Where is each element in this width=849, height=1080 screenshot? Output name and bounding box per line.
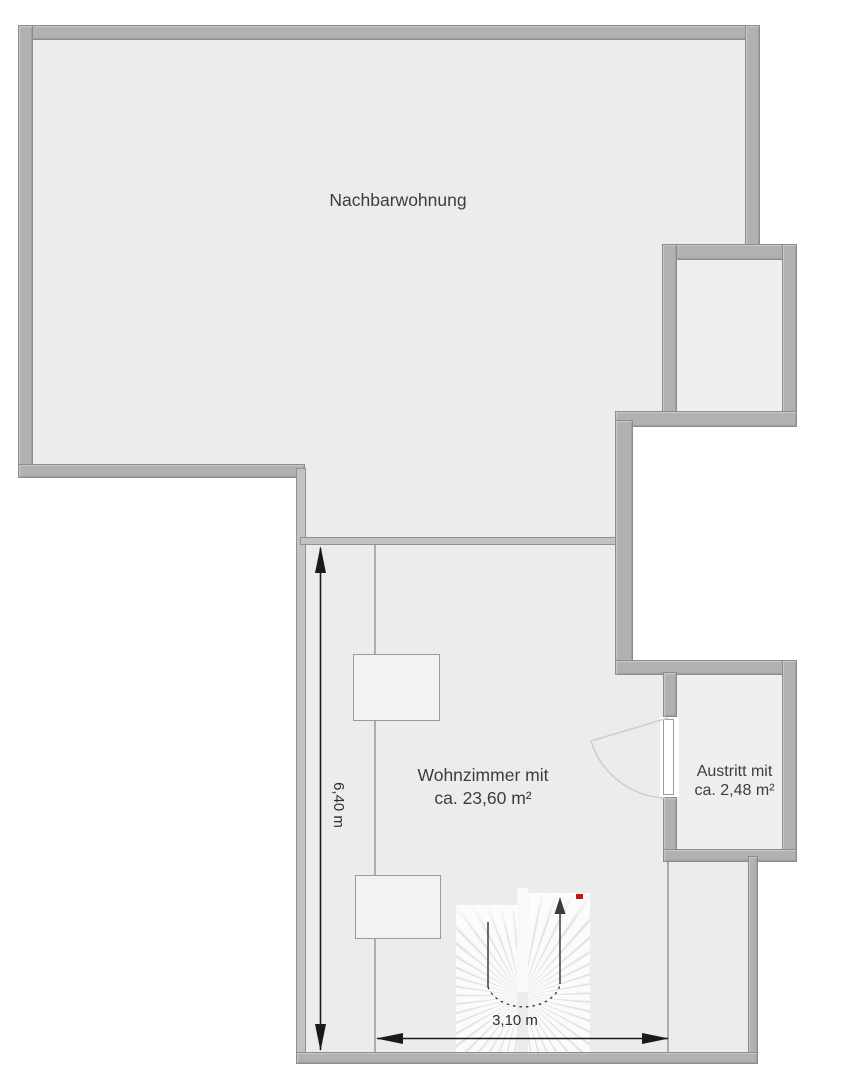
room-label-nachbarwohnung-text: Nachbarwohnung (329, 190, 466, 210)
floor-nachbarwohnung-lower-b (296, 478, 618, 545)
floor-nachbarwohnung-mid (33, 260, 662, 420)
interior-line-left (374, 545, 376, 1052)
wall-storeroom-top (662, 244, 797, 260)
wall-storeroom-bottom (615, 411, 797, 427)
floor-nachbarwohnung-upper (33, 40, 745, 260)
wall-nachbar-bottom-left (18, 464, 305, 478)
room-label-wohnzimmer-line1: Wohnzimmer mit (383, 764, 583, 787)
floor-wohnzimmer-right-lower (665, 862, 750, 1055)
floor-plan: Nachbarwohnung Wohnzimmer mit ca. 23,60 … (0, 0, 849, 1080)
interior-line-right (667, 862, 669, 1052)
stair-flight-left (456, 905, 517, 1052)
wall-divider (300, 537, 625, 545)
room-label-austritt-line1: Austritt mit (677, 762, 792, 781)
dim-label-vertical: 6,40 m (330, 764, 346, 846)
floor-storeroom (677, 260, 782, 412)
room-label-wohnzimmer-line2: ca. 23,60 m² (383, 787, 583, 810)
wall-nachbar-right-upper (745, 25, 760, 258)
wall-storeroom-right (782, 244, 797, 424)
wall-left (18, 25, 33, 478)
wall-storeroom-left (662, 244, 677, 424)
dim-label-vertical-text: 6,40 m (330, 782, 347, 828)
wall-top (18, 25, 760, 40)
wall-west-thin (296, 468, 306, 1054)
room-label-wohnzimmer: Wohnzimmer mit ca. 23,60 m² (383, 764, 583, 810)
wall-austritt-right (782, 660, 797, 862)
wall-austritt-left-lower (663, 797, 677, 854)
wall-mid-right-drop (615, 420, 633, 672)
wall-austritt-left-upper (663, 672, 677, 717)
room-label-austritt-line2: ca. 2,48 m² (677, 781, 792, 800)
door-slab (663, 719, 674, 795)
wall-bottom (296, 1052, 758, 1064)
room-label-austritt: Austritt mit ca. 2,48 m² (677, 762, 792, 800)
wall-austritt-bottom (663, 849, 797, 862)
floor-wohnzimmer-right-upper (615, 675, 665, 1055)
room-label-nachbarwohnung: Nachbarwohnung (308, 189, 488, 212)
furniture-rect-lower (355, 875, 441, 939)
dim-label-horizontal-text: 3,10 m (492, 1012, 538, 1029)
stair-center-gap (517, 888, 528, 992)
furniture-rect-upper (353, 654, 440, 721)
dim-label-horizontal: 3,10 m (475, 1013, 555, 1029)
wall-east-lower (748, 856, 758, 1058)
wall-austritt-top (615, 660, 797, 675)
